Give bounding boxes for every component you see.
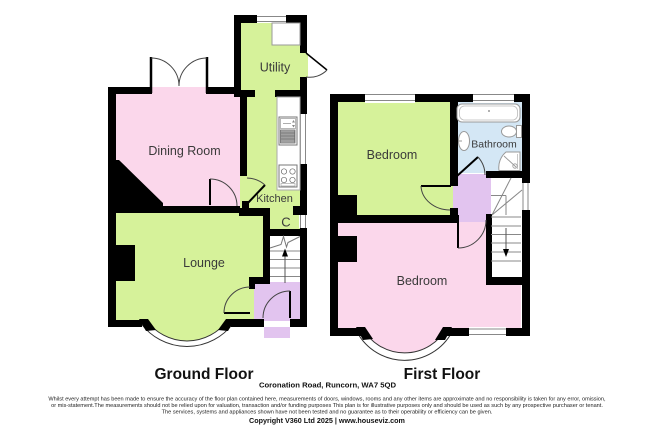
svg-text:Copyright V360 Ltd 2025 | www.: Copyright V360 Ltd 2025 | www.houseviz.c… bbox=[249, 416, 405, 425]
svg-text:or mis-statement.The measureme: or mis-statement.The measurements should… bbox=[51, 403, 603, 409]
svg-text:Bedroom: Bedroom bbox=[367, 148, 418, 162]
svg-text:Bathroom: Bathroom bbox=[471, 139, 517, 151]
svg-text:First Floor: First Floor bbox=[404, 366, 481, 383]
svg-text:C: C bbox=[281, 215, 290, 230]
svg-text:Whilst every attempt has been: Whilst every attempt has been made to en… bbox=[48, 397, 606, 403]
svg-text:Dining Room: Dining Room bbox=[148, 144, 220, 158]
svg-text:Coronation Road, Runcorn, WA7: Coronation Road, Runcorn, WA7 5QD bbox=[259, 381, 397, 390]
svg-text:Bedroom: Bedroom bbox=[397, 274, 448, 288]
svg-text:Lounge: Lounge bbox=[183, 256, 225, 270]
svg-text:Kitchen: Kitchen bbox=[256, 193, 293, 205]
svg-text:Ground Floor: Ground Floor bbox=[154, 366, 253, 383]
svg-text:The services, systems and appl: The services, systems and appliances sho… bbox=[162, 410, 493, 416]
svg-text:Utility: Utility bbox=[260, 61, 291, 75]
